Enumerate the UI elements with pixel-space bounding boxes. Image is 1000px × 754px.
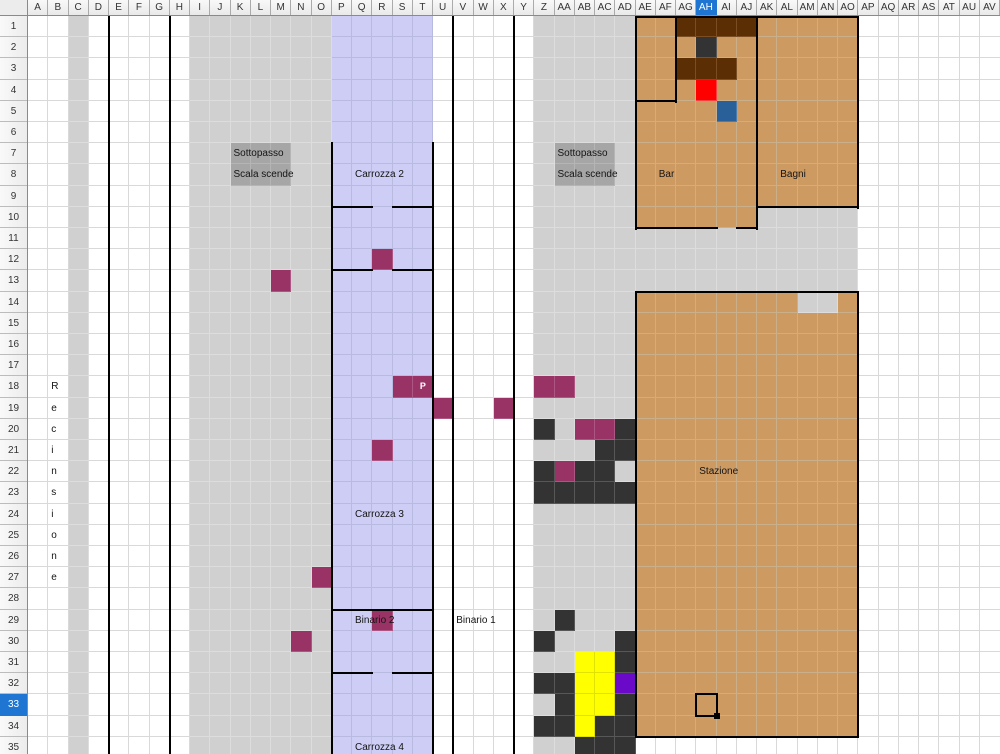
cell-AB1[interactable] (575, 16, 595, 37)
cell-AF26[interactable] (656, 546, 676, 567)
cell-Q10[interactable] (352, 207, 372, 228)
cell-I14[interactable] (190, 292, 210, 313)
cell-AO19[interactable] (838, 398, 858, 419)
col-header-E[interactable]: E (109, 0, 129, 15)
cell-J21[interactable] (210, 440, 230, 461)
cell-P20[interactable] (332, 419, 352, 440)
cell-Q22[interactable] (352, 461, 372, 482)
cell-I10[interactable] (190, 207, 210, 228)
cell-AD25[interactable] (615, 525, 635, 546)
cell-AG24[interactable] (676, 504, 696, 525)
cell-AN25[interactable] (818, 525, 838, 546)
cell-AK13[interactable] (757, 270, 777, 291)
cell-L35[interactable] (251, 737, 271, 754)
cell-AO5[interactable] (838, 101, 858, 122)
cell-P3[interactable] (332, 58, 352, 79)
cell-P30[interactable] (332, 631, 352, 652)
cell-AC16[interactable] (595, 334, 615, 355)
cell-AN33[interactable] (818, 694, 838, 715)
cell-AJ3[interactable] (737, 58, 757, 79)
cell-AO3[interactable] (838, 58, 858, 79)
cell-AE8[interactable] (636, 164, 656, 185)
cell-AE18[interactable] (636, 376, 656, 397)
cell-AF15[interactable] (656, 313, 676, 334)
cell-Z9[interactable] (534, 186, 554, 207)
cell-AG33[interactable] (676, 694, 696, 715)
cell-AI31[interactable] (717, 652, 737, 673)
cell-AH27[interactable] (696, 567, 716, 588)
cell-N7[interactable] (291, 143, 311, 164)
cell-C28[interactable] (69, 588, 89, 609)
col-header-O[interactable]: O (312, 0, 332, 15)
cell-R3[interactable] (372, 58, 392, 79)
cell-I8[interactable] (190, 164, 210, 185)
cell-AF22[interactable] (656, 461, 676, 482)
cell-AG9[interactable] (676, 186, 696, 207)
cell-AJ26[interactable] (737, 546, 757, 567)
cell-AC19[interactable] (595, 398, 615, 419)
cell-O25[interactable] (312, 525, 332, 546)
cell-T17[interactable] (413, 355, 433, 376)
cell-T31[interactable] (413, 652, 433, 673)
row-header-20[interactable]: 20 (0, 419, 27, 440)
cell-AC12[interactable] (595, 249, 615, 270)
cell-AG4[interactable] (676, 80, 696, 101)
cell-AE5[interactable] (636, 101, 656, 122)
cell-Z35[interactable] (534, 737, 554, 754)
cell-AA17[interactable] (555, 355, 575, 376)
cell-P16[interactable] (332, 334, 352, 355)
cell-C13[interactable] (69, 270, 89, 291)
cell-Q6[interactable] (352, 122, 372, 143)
cell-AH3[interactable] (696, 58, 716, 79)
cell-AH13[interactable] (696, 270, 716, 291)
cell-AC21[interactable] (595, 440, 615, 461)
cell-N15[interactable] (291, 313, 311, 334)
cell-J3[interactable] (210, 58, 230, 79)
row-header-32[interactable]: 32 (0, 673, 27, 694)
cell-AE28[interactable] (636, 588, 656, 609)
cell-AM15[interactable] (798, 313, 818, 334)
cell-O13[interactable] (312, 270, 332, 291)
cell-N35[interactable] (291, 737, 311, 754)
row-header-10[interactable]: 10 (0, 207, 27, 228)
cell-AK2[interactable] (757, 37, 777, 58)
cell-S16[interactable] (393, 334, 413, 355)
cell-AN23[interactable] (818, 482, 838, 503)
cell-K34[interactable] (231, 716, 251, 737)
cell-AA14[interactable] (555, 292, 575, 313)
cell-AF32[interactable] (656, 673, 676, 694)
cell-AK19[interactable] (757, 398, 777, 419)
cell-AN26[interactable] (818, 546, 838, 567)
cell-AM4[interactable] (798, 80, 818, 101)
cell-M10[interactable] (271, 207, 291, 228)
cell-C35[interactable] (69, 737, 89, 754)
cell-Z27[interactable] (534, 567, 554, 588)
cell-AA29[interactable] (555, 610, 575, 631)
cell-AA34[interactable] (555, 716, 575, 737)
cell-Z21[interactable] (534, 440, 554, 461)
cell-S26[interactable] (393, 546, 413, 567)
cell-AD19[interactable] (615, 398, 635, 419)
cell-AB12[interactable] (575, 249, 595, 270)
cell-AO14[interactable] (838, 292, 858, 313)
cell-L16[interactable] (251, 334, 271, 355)
cell-Z11[interactable] (534, 228, 554, 249)
cell-K31[interactable] (231, 652, 251, 673)
col-header-AR[interactable]: AR (899, 0, 919, 15)
cell-AB24[interactable] (575, 504, 595, 525)
cell-AD4[interactable] (615, 80, 635, 101)
cell-L23[interactable] (251, 482, 271, 503)
cell-AN16[interactable] (818, 334, 838, 355)
cell-K19[interactable] (231, 398, 251, 419)
label-stazione[interactable]: Stazione (696, 461, 738, 482)
cell-cursor[interactable] (695, 693, 717, 716)
cell-R10[interactable] (372, 207, 392, 228)
cell-S13[interactable] (393, 270, 413, 291)
cell-Z3[interactable] (534, 58, 554, 79)
cell-R31[interactable] (372, 652, 392, 673)
cell-AH18[interactable] (696, 376, 716, 397)
cell-AF27[interactable] (656, 567, 676, 588)
cell-AD26[interactable] (615, 546, 635, 567)
cell-J5[interactable] (210, 101, 230, 122)
cell-AJ22[interactable] (737, 461, 757, 482)
row-header-16[interactable]: 16 (0, 334, 27, 355)
cell-J31[interactable] (210, 652, 230, 673)
cell-AC15[interactable] (595, 313, 615, 334)
cell-I6[interactable] (190, 122, 210, 143)
row-header-29[interactable]: 29 (0, 610, 27, 631)
cell-AL18[interactable] (777, 376, 797, 397)
cell-AM27[interactable] (798, 567, 818, 588)
cell-AK18[interactable] (757, 376, 777, 397)
cell-AN20[interactable] (818, 419, 838, 440)
cell-AI24[interactable] (717, 504, 737, 525)
cell-AI33[interactable] (717, 694, 737, 715)
cell-AH15[interactable] (696, 313, 716, 334)
cell-J17[interactable] (210, 355, 230, 376)
cell-S17[interactable] (393, 355, 413, 376)
cell-J20[interactable] (210, 419, 230, 440)
cell-AC25[interactable] (595, 525, 615, 546)
cell-AO22[interactable] (838, 461, 858, 482)
cell-C12[interactable] (69, 249, 89, 270)
cell-AA33[interactable] (555, 694, 575, 715)
col-header-AC[interactable]: AC (595, 0, 615, 15)
cell-AI17[interactable] (717, 355, 737, 376)
cell-T19[interactable] (413, 398, 433, 419)
cell-P35[interactable] (332, 737, 352, 754)
cell-AK6[interactable] (757, 122, 777, 143)
col-header-F[interactable]: F (129, 0, 149, 15)
cell-R2[interactable] (372, 37, 392, 58)
cell-AG6[interactable] (676, 122, 696, 143)
cell-I29[interactable] (190, 610, 210, 631)
cell-AL19[interactable] (777, 398, 797, 419)
cell-AO31[interactable] (838, 652, 858, 673)
cell-AJ25[interactable] (737, 525, 757, 546)
cell-O4[interactable] (312, 80, 332, 101)
cell-J16[interactable] (210, 334, 230, 355)
cell-M24[interactable] (271, 504, 291, 525)
cell-S21[interactable] (393, 440, 413, 461)
cell-AL15[interactable] (777, 313, 797, 334)
cell-P14[interactable] (332, 292, 352, 313)
cell-Q18[interactable] (352, 376, 372, 397)
cell-AI26[interactable] (717, 546, 737, 567)
cell-P9[interactable] (332, 186, 352, 207)
cell-K29[interactable] (231, 610, 251, 631)
cell-AG26[interactable] (676, 546, 696, 567)
cell-O24[interactable] (312, 504, 332, 525)
cell-AA18[interactable] (555, 376, 575, 397)
cell-K10[interactable] (231, 207, 251, 228)
cell-AJ5[interactable] (737, 101, 757, 122)
cell-AB33[interactable] (575, 694, 595, 715)
cell-N21[interactable] (291, 440, 311, 461)
col-header-AH[interactable]: AH (696, 0, 716, 15)
cell-T28[interactable] (413, 588, 433, 609)
cell-S30[interactable] (393, 631, 413, 652)
cell-L28[interactable] (251, 588, 271, 609)
cell-O23[interactable] (312, 482, 332, 503)
cell-AM2[interactable] (798, 37, 818, 58)
cell-Q30[interactable] (352, 631, 372, 652)
cell-P18[interactable] (332, 376, 352, 397)
cell-Z6[interactable] (534, 122, 554, 143)
cell-P17[interactable] (332, 355, 352, 376)
cell-AF34[interactable] (656, 716, 676, 737)
cell-K18[interactable] (231, 376, 251, 397)
cell-O18[interactable] (312, 376, 332, 397)
cell-J26[interactable] (210, 546, 230, 567)
cell-AG20[interactable] (676, 419, 696, 440)
cell-C1[interactable] (69, 16, 89, 37)
cell-AJ6[interactable] (737, 122, 757, 143)
label-bagni[interactable]: Bagni (777, 164, 806, 185)
cell-C27[interactable] (69, 567, 89, 588)
cell-AJ8[interactable] (737, 164, 757, 185)
cell-S19[interactable] (393, 398, 413, 419)
cell-Z1[interactable] (534, 16, 554, 37)
cell-Q12[interactable] (352, 249, 372, 270)
cell-I25[interactable] (190, 525, 210, 546)
cell-AA3[interactable] (555, 58, 575, 79)
cell-K23[interactable] (231, 482, 251, 503)
cell-AJ15[interactable] (737, 313, 757, 334)
cell-R20[interactable] (372, 419, 392, 440)
col-header-L[interactable]: L (251, 0, 271, 15)
cell-O7[interactable] (312, 143, 332, 164)
cell-AH30[interactable] (696, 631, 716, 652)
col-header-A[interactable]: A (28, 0, 48, 15)
cell-AC13[interactable] (595, 270, 615, 291)
cell-AK20[interactable] (757, 419, 777, 440)
cell-S33[interactable] (393, 694, 413, 715)
cell-I18[interactable] (190, 376, 210, 397)
col-header-U[interactable]: U (433, 0, 453, 15)
col-header-AA[interactable]: AA (555, 0, 575, 15)
cell-AA24[interactable] (555, 504, 575, 525)
cell-AI16[interactable] (717, 334, 737, 355)
cell-AC10[interactable] (595, 207, 615, 228)
cell-AI18[interactable] (717, 376, 737, 397)
cell-AG13[interactable] (676, 270, 696, 291)
cell-AL26[interactable] (777, 546, 797, 567)
cell-AK22[interactable] (757, 461, 777, 482)
cell-AO2[interactable] (838, 37, 858, 58)
cell-AA25[interactable] (555, 525, 575, 546)
cell-AN5[interactable] (818, 101, 838, 122)
cell-N33[interactable] (291, 694, 311, 715)
cell-R26[interactable] (372, 546, 392, 567)
cell-K11[interactable] (231, 228, 251, 249)
cell-AG1[interactable] (676, 16, 696, 37)
cell-M13[interactable] (271, 270, 291, 291)
cell-C26[interactable] (69, 546, 89, 567)
cell-AI1[interactable] (717, 16, 737, 37)
cell-C9[interactable] (69, 186, 89, 207)
cell-AL17[interactable] (777, 355, 797, 376)
cell-AK1[interactable] (757, 16, 777, 37)
cell-I32[interactable] (190, 673, 210, 694)
row-header-34[interactable]: 34 (0, 716, 27, 737)
cell-O21[interactable] (312, 440, 332, 461)
cell-AH25[interactable] (696, 525, 716, 546)
cell-AI29[interactable] (717, 610, 737, 631)
cell-AL21[interactable] (777, 440, 797, 461)
cell-AO1[interactable] (838, 16, 858, 37)
cell-L1[interactable] (251, 16, 271, 37)
cell-AL28[interactable] (777, 588, 797, 609)
col-header-AT[interactable]: AT (939, 0, 959, 15)
cell-C2[interactable] (69, 37, 89, 58)
cell-AD17[interactable] (615, 355, 635, 376)
cell-Z25[interactable] (534, 525, 554, 546)
cell-AA35[interactable] (555, 737, 575, 754)
cell-Q15[interactable] (352, 313, 372, 334)
cell-AO9[interactable] (838, 186, 858, 207)
cell-AN15[interactable] (818, 313, 838, 334)
row-header-27[interactable]: 27 (0, 567, 27, 588)
cell-O8[interactable] (312, 164, 332, 185)
cell-O6[interactable] (312, 122, 332, 143)
cell-AM20[interactable] (798, 419, 818, 440)
cell-J28[interactable] (210, 588, 230, 609)
cell-O10[interactable] (312, 207, 332, 228)
cell-O17[interactable] (312, 355, 332, 376)
cell-AN17[interactable] (818, 355, 838, 376)
cell-AL23[interactable] (777, 482, 797, 503)
cell-T22[interactable] (413, 461, 433, 482)
cell-AK23[interactable] (757, 482, 777, 503)
cell-T13[interactable] (413, 270, 433, 291)
cell-AO32[interactable] (838, 673, 858, 694)
cell-S3[interactable] (393, 58, 413, 79)
cell-N9[interactable] (291, 186, 311, 207)
cell-AM10[interactable] (798, 207, 818, 228)
cell-AH14[interactable] (696, 292, 716, 313)
cell-AF3[interactable] (656, 58, 676, 79)
cell-Z15[interactable] (534, 313, 554, 334)
cell-K9[interactable] (231, 186, 251, 207)
cell-AF23[interactable] (656, 482, 676, 503)
cell-AI9[interactable] (717, 186, 737, 207)
cell-C10[interactable] (69, 207, 89, 228)
cell-Z30[interactable] (534, 631, 554, 652)
cell-Z17[interactable] (534, 355, 554, 376)
cell-P5[interactable] (332, 101, 352, 122)
cell-AC33[interactable] (595, 694, 615, 715)
col-header-AG[interactable]: AG (676, 0, 696, 15)
cell-AE9[interactable] (636, 186, 656, 207)
cell-AC31[interactable] (595, 652, 615, 673)
cell-Z22[interactable] (534, 461, 554, 482)
cell-M12[interactable] (271, 249, 291, 270)
cell-AJ10[interactable] (737, 207, 757, 228)
cell-Q4[interactable] (352, 80, 372, 101)
cell-Z12[interactable] (534, 249, 554, 270)
cell-J8[interactable] (210, 164, 230, 185)
cell-L29[interactable] (251, 610, 271, 631)
cell-T12[interactable] (413, 249, 433, 270)
cell-L22[interactable] (251, 461, 271, 482)
row-header-9[interactable]: 9 (0, 186, 27, 207)
cell-J14[interactable] (210, 292, 230, 313)
cell-AD1[interactable] (615, 16, 635, 37)
cell-AI13[interactable] (717, 270, 737, 291)
cell-K1[interactable] (231, 16, 251, 37)
cell-J32[interactable] (210, 673, 230, 694)
cell-AL33[interactable] (777, 694, 797, 715)
col-header-W[interactable]: W (474, 0, 494, 15)
cell-AH1[interactable] (696, 16, 716, 37)
col-header-Q[interactable]: Q (352, 0, 372, 15)
cell-P29[interactable] (332, 610, 352, 631)
cell-AI3[interactable] (717, 58, 737, 79)
cell-AL22[interactable] (777, 461, 797, 482)
cell-L18[interactable] (251, 376, 271, 397)
cell-T6[interactable] (413, 122, 433, 143)
cell-S28[interactable] (393, 588, 413, 609)
cell-T26[interactable] (413, 546, 433, 567)
cell-AJ7[interactable] (737, 143, 757, 164)
cell-AN14[interactable] (818, 292, 838, 313)
cell-I23[interactable] (190, 482, 210, 503)
cell-AK26[interactable] (757, 546, 777, 567)
cell-J4[interactable] (210, 80, 230, 101)
cell-AK17[interactable] (757, 355, 777, 376)
cell-C22[interactable] (69, 461, 89, 482)
cell-AC4[interactable] (595, 80, 615, 101)
cell-T2[interactable] (413, 37, 433, 58)
cell-C7[interactable] (69, 143, 89, 164)
cell-AG32[interactable] (676, 673, 696, 694)
cell-M35[interactable] (271, 737, 291, 754)
cell-P1[interactable] (332, 16, 352, 37)
cell-T14[interactable] (413, 292, 433, 313)
cell-AC9[interactable] (595, 186, 615, 207)
cell-AE19[interactable] (636, 398, 656, 419)
cell-Z10[interactable] (534, 207, 554, 228)
cell-AN30[interactable] (818, 631, 838, 652)
cell-AE21[interactable] (636, 440, 656, 461)
cell-AF24[interactable] (656, 504, 676, 525)
cell-L5[interactable] (251, 101, 271, 122)
